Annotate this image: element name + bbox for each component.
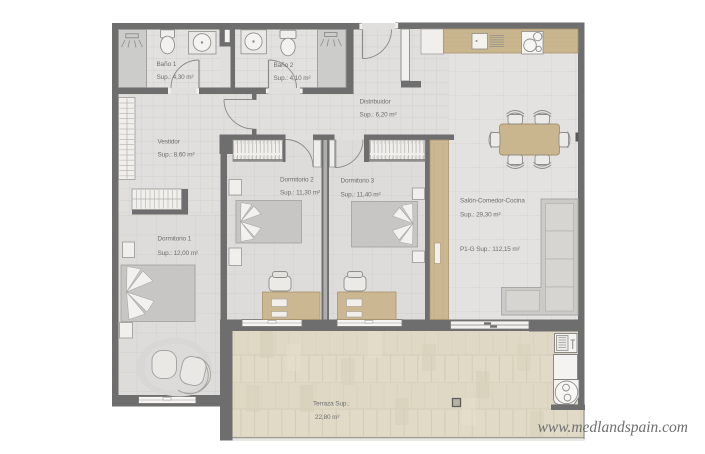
- svg-text:Sup.: 4,30 m²: Sup.: 4,30 m²: [157, 74, 194, 81]
- svg-text:Dormitorio 2: Dormitorio 2: [280, 177, 314, 184]
- svg-text:www.medlandspain.com: www.medlandspain.com: [538, 419, 688, 436]
- svg-text:Sup.: 11,30 m²: Sup.: 11,30 m²: [280, 190, 320, 197]
- svg-text:Baño 1: Baño 1: [157, 61, 177, 68]
- svg-text:Sup.: 4,10 m²: Sup.: 4,10 m²: [274, 75, 311, 82]
- svg-text:Dormitorio 3: Dormitorio 3: [341, 178, 375, 185]
- svg-text:Distribuidor: Distribuidor: [360, 99, 392, 106]
- svg-text:Salón-Comedor-Cocina: Salón-Comedor-Cocina: [460, 198, 525, 205]
- svg-text:Dormitorio 1: Dormitorio 1: [158, 236, 192, 243]
- svg-text:Baño 2: Baño 2: [274, 62, 294, 69]
- svg-text:Sup.: 6,20 m²: Sup.: 6,20 m²: [360, 112, 397, 119]
- svg-text:Sup.: 29,30 m²: Sup.: 29,30 m²: [460, 212, 501, 219]
- svg-text:22,80 m²: 22,80 m²: [315, 414, 339, 421]
- svg-text:Sup.: 12,00 m²: Sup.: 12,00 m²: [158, 250, 199, 257]
- svg-text:Sup.: 11,40 m²: Sup.: 11,40 m²: [341, 192, 381, 199]
- svg-text:Sup.: 8,60 m²: Sup.: 8,60 m²: [158, 152, 195, 159]
- svg-text:Terraza Sup.:: Terraza Sup.:: [313, 401, 350, 408]
- svg-text:P1-G Sup.: 112,15 m²: P1-G Sup.: 112,15 m²: [460, 246, 520, 253]
- svg-text:Vestidor: Vestidor: [158, 139, 181, 146]
